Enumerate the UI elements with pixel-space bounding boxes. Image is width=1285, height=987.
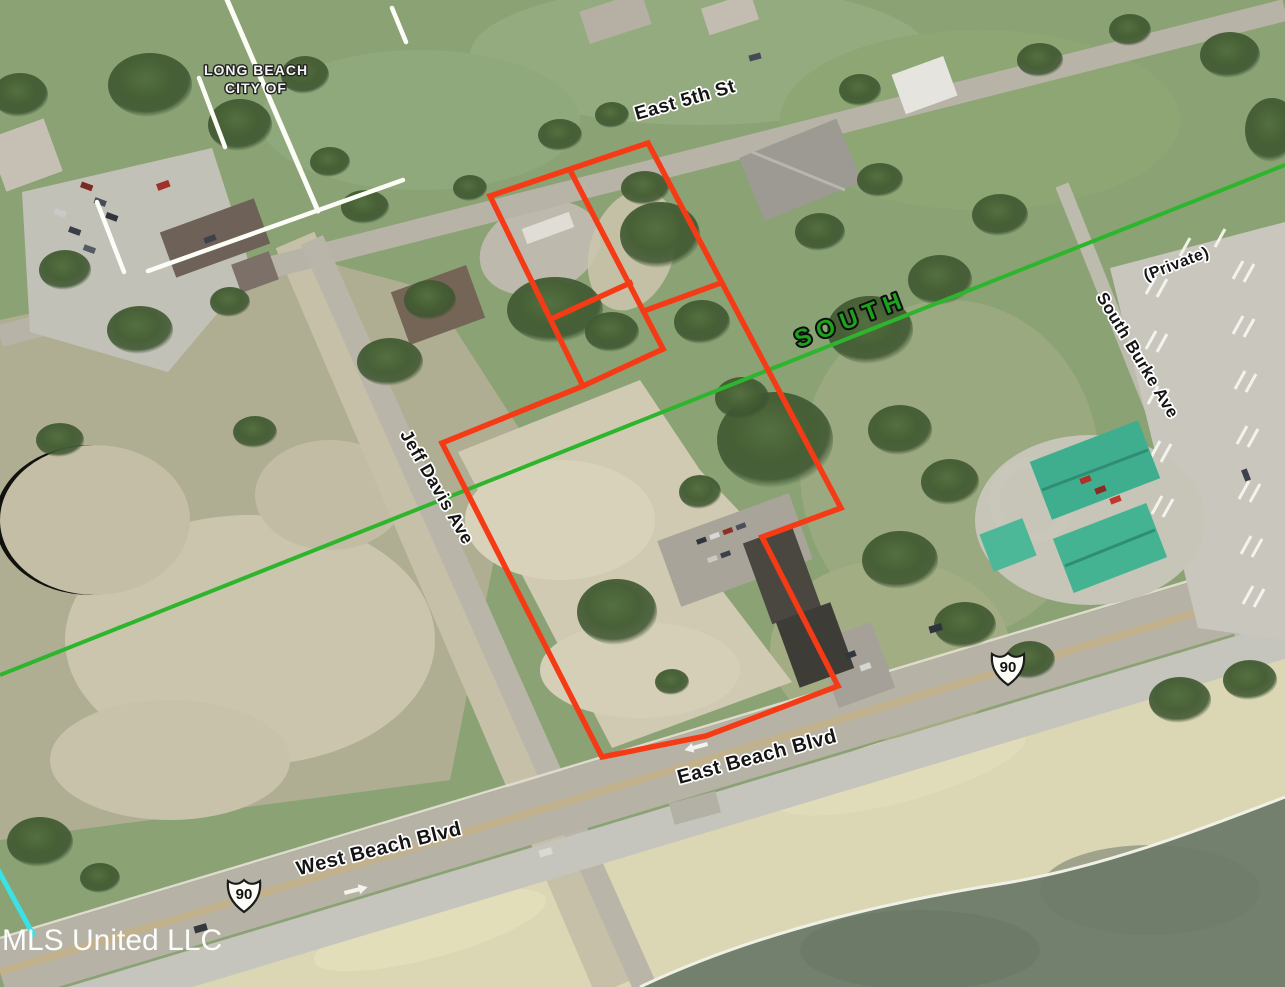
mls-watermark: MLS United LLC xyxy=(2,924,222,957)
city-boundary-label-line1: LONG BEACH xyxy=(204,62,308,78)
aerial-map-canvas[interactable]: 90 90 LONG BEACH CITY OF East 5th St SOU… xyxy=(0,0,1285,987)
route-shield-west-number: 90 xyxy=(236,886,253,903)
city-boundary-label-line2: CITY OF xyxy=(225,80,287,96)
map-svg: 90 90 LONG BEACH CITY OF East 5th St SOU… xyxy=(0,0,1285,987)
route-shield-east-number: 90 xyxy=(1000,659,1017,676)
